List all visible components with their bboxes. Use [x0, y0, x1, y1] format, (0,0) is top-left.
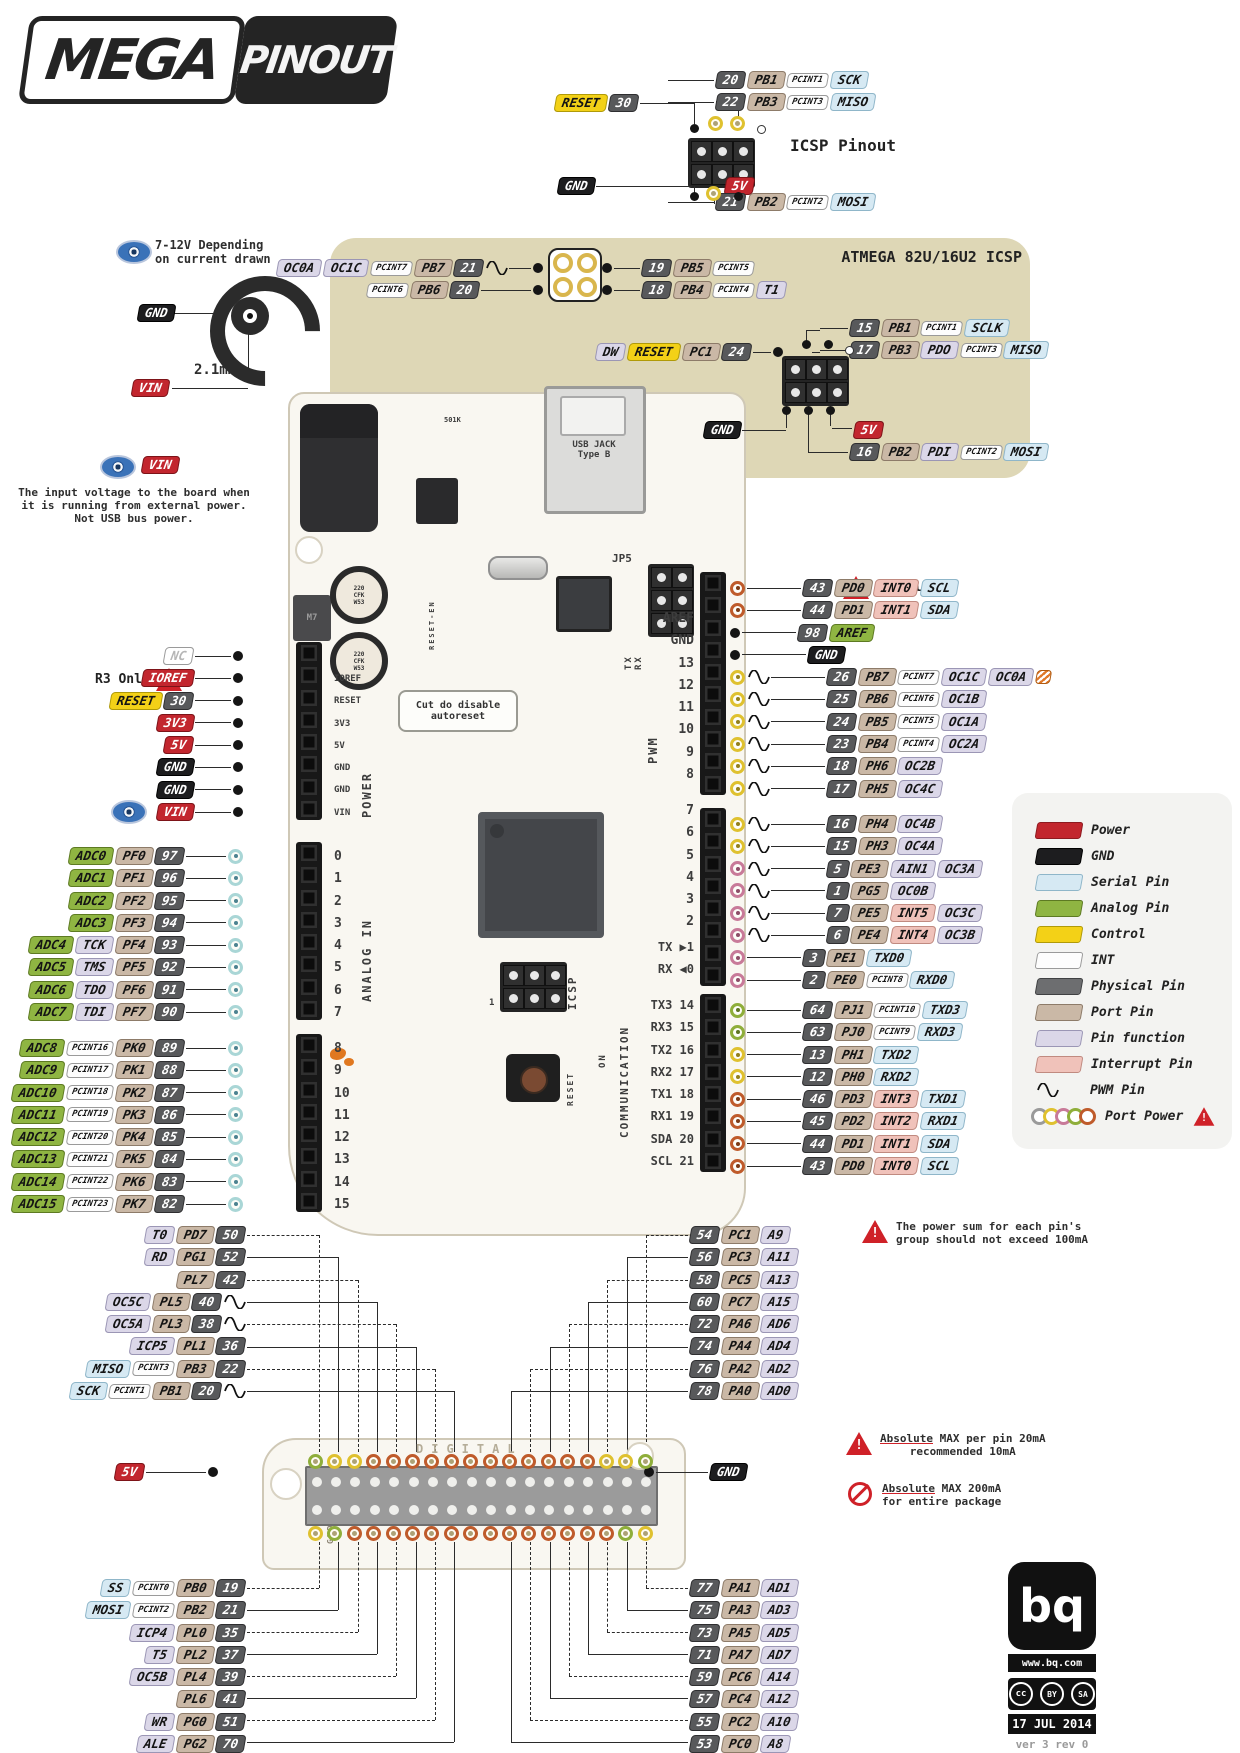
- pwm-squiggle-icon: [224, 1295, 246, 1309]
- pin-chip-ser: TXD1: [920, 1090, 967, 1108]
- pin-row: IOREF: [140, 668, 245, 688]
- warning-triangle-icon: [846, 1432, 872, 1455]
- pin-chip-int: INT1: [873, 601, 920, 619]
- pin-row: GND: [556, 176, 596, 196]
- pin-chip-num: 54: [688, 1226, 720, 1244]
- pin-chip-fn: T1: [755, 281, 787, 299]
- pin-chip-num: 53: [688, 1735, 720, 1753]
- pin-chip-pc: PCINT3: [786, 95, 829, 110]
- pin-row: ADC14PCINT22PK683: [11, 1172, 245, 1192]
- txrx-silk: TX RX: [624, 628, 644, 670]
- right-header-c: [700, 994, 726, 1172]
- pin-chip-pc: PCINT5: [897, 714, 940, 729]
- pin-chip-pc: PCINT2: [786, 195, 829, 210]
- pin-chip-fn: OC0A: [987, 668, 1034, 686]
- pin-chip-num: 43: [801, 579, 833, 597]
- pin-chip-num: 35: [215, 1624, 247, 1642]
- supply-note: 7-12V Depending on current drawn: [155, 238, 271, 266]
- pin-row: DWRESETPC124: [595, 342, 785, 362]
- pin-chip-fn: TMS: [75, 958, 115, 976]
- pin-row: VIN: [140, 455, 180, 475]
- pin-row: 76PA2AD2: [688, 1359, 799, 1379]
- pin-row: 44PD1INT1SDA: [728, 600, 959, 620]
- mega-pinout-poster: MEGA PINOUT ICSP Pinout RESET30 GND 5V 2…: [0, 0, 1240, 1753]
- power-silk-vertical: POWER: [360, 742, 374, 818]
- pin-row: ADC10PCINT18PK287: [11, 1083, 245, 1103]
- pin-chip-num: 91: [154, 981, 186, 999]
- pin-chip-fn: OC3B: [936, 926, 983, 944]
- pin-chip-num: 94: [154, 914, 186, 932]
- pin-chip-num: 44: [801, 601, 833, 619]
- pin-chip-ctl: RESET: [627, 343, 682, 361]
- pin-row: 43PD0INT0SCL: [728, 1156, 959, 1176]
- pwm-squiggle-icon: [748, 839, 770, 853]
- pin-chip-port: PH6: [857, 757, 897, 775]
- atmega-title: ATMEGA 82U/16U2 ICSP: [830, 248, 1022, 266]
- pin-chip-pwr: VIN: [130, 379, 170, 397]
- pin-chip-fn: AD7: [760, 1646, 800, 1664]
- bq-logo: bq: [1008, 1562, 1096, 1650]
- cc-by-icon: BY: [1040, 1682, 1064, 1706]
- pin-chip-port: PG1: [175, 1248, 215, 1266]
- pin-chip-pc: PCINT9: [873, 1025, 916, 1040]
- pin-chip-ser: SCL: [920, 1157, 960, 1175]
- pin-chip-pwr: VIN: [140, 456, 180, 474]
- legend-item: Serial Pin: [1012, 869, 1232, 895]
- resistor-label: 501K: [444, 416, 461, 424]
- power-pin-rows: NCIOREFRESET303V35VGNDGNDVIN: [40, 646, 245, 824]
- pin-chip-gnd: GND: [556, 177, 596, 195]
- pin-chip-fn: TCK: [75, 936, 115, 954]
- pin-row: 77PA1AD1: [688, 1578, 799, 1598]
- eye-icon: [100, 455, 136, 479]
- digital-rows-right: 54PC1A956PC3A1158PC5A1360PC7A1572PA6AD67…: [688, 1225, 799, 1403]
- pin-chip-pc: PCINT17: [66, 1063, 114, 1078]
- reset-silk: RESET: [566, 1054, 575, 1106]
- pin-chip-gnd: GND: [806, 646, 846, 664]
- pwm-squiggle-icon: [748, 759, 770, 773]
- logo-pinout: PINOUT: [234, 16, 398, 104]
- power-silk-column: IOREF RESET 3V3 5V GND GND VIN: [334, 668, 361, 824]
- jp5-label: JP5: [612, 552, 632, 565]
- pin-chip-port: PC6: [720, 1668, 760, 1686]
- pin-chip-port: PF0: [114, 847, 154, 865]
- pin-chip-port: PA5: [720, 1624, 760, 1642]
- pin-chip-pwr: 5V: [114, 1463, 146, 1481]
- pin-chip-port: PB2: [746, 193, 786, 211]
- pin-row: 3PE1TXD0: [728, 948, 912, 968]
- pin-row: ADC0PF097: [67, 846, 245, 866]
- pin-row: 17PH5OC4C: [728, 779, 944, 799]
- pin-chip-num: 15: [825, 837, 857, 855]
- warning-pin-rest: MAX per pin 20mA: [933, 1432, 1046, 1445]
- pwm-squiggle-icon: [748, 737, 770, 751]
- pin-chip-port: PG5: [849, 882, 889, 900]
- pin-chip-num: 59: [688, 1668, 720, 1686]
- pin-chip-num: 84: [154, 1150, 186, 1168]
- warning-group-power: The power sum for each pin's group shoul…: [862, 1220, 1088, 1246]
- pin-chip-fn: A10: [760, 1713, 800, 1731]
- pin-chip-fn: WR: [143, 1713, 175, 1731]
- pin-chip-num: 36: [215, 1337, 247, 1355]
- pin-chip-port: PB7: [413, 259, 453, 277]
- pin-chip-port: PC5: [720, 1271, 760, 1289]
- pin-chip-int: INT5: [889, 904, 936, 922]
- pwm-squiggle-icon: [224, 1317, 246, 1331]
- right-silk-b: 7 6 5 4 3 2: [668, 800, 694, 934]
- pin-chip-gnd: GND: [708, 1463, 748, 1481]
- pin-chip-pc: PCINT7: [370, 261, 413, 276]
- pin-row: 24PB5PCINT5OC1A: [728, 712, 987, 732]
- pin-chip-pc: PCINT20: [66, 1130, 114, 1145]
- pin-chip-num: 26: [825, 668, 857, 686]
- pin-chip-port: PA1: [720, 1579, 760, 1597]
- pin-row: OC5APL338: [104, 1314, 247, 1334]
- pin-chip-fn: AD6: [760, 1315, 800, 1333]
- analog-header-b: [296, 1034, 322, 1212]
- atmega-mosi-row: 16PB2PDIPCINT2MOSI: [820, 442, 1050, 464]
- pin-chip-pc: PCINT21: [66, 1152, 114, 1167]
- pin-chip-an: ADC14: [11, 1173, 66, 1191]
- pwm-silk: PWM: [646, 700, 660, 764]
- pin-chip-ser: RXD3: [916, 1023, 963, 1041]
- pin-chip-an: ADC5: [28, 958, 75, 976]
- pin-row: ADC13PCINT21PK584: [11, 1149, 245, 1169]
- pin-chip-num: 25: [825, 690, 857, 708]
- pin-chip-pc: PCINT6: [897, 692, 940, 707]
- pin-chip-fn: DW: [595, 343, 627, 361]
- pwm-squiggle-icon: [748, 884, 770, 898]
- m7-diode: M7: [293, 595, 331, 641]
- pin-chip-port: PE1: [825, 949, 865, 967]
- pin-chip-fn: PDI: [920, 443, 960, 461]
- comm-silk-col: TX3 14 RX3 15 TX2 16 RX2 17 TX1 18 RX1 1…: [608, 994, 694, 1172]
- pin-chip-num: 42: [215, 1271, 247, 1289]
- pin-chip-gnd: GND: [136, 304, 176, 322]
- pin-chip-num: 3: [801, 949, 826, 967]
- pwm-squiggle-icon: [748, 782, 770, 796]
- pin-chip-pc: PCINT23: [66, 1197, 114, 1212]
- voltage-regulator: [416, 478, 458, 524]
- pin-chip-ser: MOSI: [84, 1601, 131, 1619]
- legend-item: Control: [1012, 921, 1232, 947]
- pin-chip-port: PD3: [833, 1090, 873, 1108]
- pwm-squiggle-icon: [748, 862, 770, 876]
- vin-note-label: VIN: [140, 455, 180, 477]
- pin-chip-num: 41: [215, 1690, 247, 1708]
- bottom-gnd-label: GND: [642, 1462, 748, 1484]
- pin-chip-fn: OC4C: [897, 780, 944, 798]
- pin-row: SCKPCINT1PB120: [68, 1381, 247, 1401]
- pin-chip-pc: PCINT22: [66, 1174, 114, 1189]
- warning-pkg-rest: MAX 200mA: [935, 1482, 1001, 1495]
- legend-item: Interrupt Pin: [1012, 1051, 1232, 1077]
- pin-chip-fn: T5: [143, 1646, 175, 1664]
- pin-chip-num: 12: [801, 1068, 833, 1086]
- pin-chip-port: PK0: [114, 1039, 154, 1057]
- pin-chip-gnd: GND: [155, 781, 195, 799]
- pin-row: ALEPG270: [136, 1734, 247, 1753]
- pin-row: 5V: [852, 420, 884, 440]
- pin-chip-num: 6: [825, 926, 850, 944]
- bottom-rows-left: SSPCINT0PB019MOSIPCINT2PB221ICP4PL035T5P…: [40, 1578, 247, 1753]
- pin-row: 19PB5PCINT5: [600, 258, 755, 278]
- pin-row: RESET30: [108, 691, 245, 711]
- pin-row: 57PC4A12: [688, 1689, 799, 1709]
- pin-chip-port: PC4: [720, 1690, 760, 1708]
- pin-row: ADC8PCINT16PK089: [18, 1038, 245, 1058]
- pin-chip-num: 55: [688, 1713, 720, 1731]
- pin-chip-pc: PCINT16: [66, 1041, 114, 1056]
- pin-chip-fn: AIN1: [889, 860, 936, 878]
- pin-chip-num: 64: [801, 1001, 833, 1019]
- pin-chip-fn: OC1B: [940, 690, 987, 708]
- pin-chip-pwr: VIN: [155, 803, 195, 821]
- pin-chip-pc: PCINT7: [897, 670, 940, 685]
- pin-row: 16PH4OC4B: [728, 814, 944, 834]
- pin-chip-port: PL7: [175, 1271, 215, 1289]
- power-header: [296, 642, 322, 820]
- pin-chip-an: ADC13: [11, 1150, 66, 1168]
- pin-chip-port: PG0: [175, 1713, 215, 1731]
- pin-row: ADC11PCINT19PK386: [11, 1105, 245, 1125]
- pin-chip-fn: A14: [760, 1668, 800, 1686]
- pin-row: 12PH0RXD2: [728, 1067, 920, 1087]
- pin-chip-port: PD1: [833, 1135, 873, 1153]
- pin-row: 59PC6A14: [688, 1667, 799, 1687]
- jack-gnd-label: GND: [60, 303, 176, 325]
- pin-chip-fn: PDO: [920, 341, 960, 359]
- pin-chip-num: 82: [154, 1195, 186, 1213]
- pin-chip-port: PD0: [833, 1157, 873, 1175]
- pwm-squiggle-icon: [748, 715, 770, 729]
- prohibited-icon: [848, 1482, 872, 1506]
- pin-chip-num: 73: [688, 1624, 720, 1642]
- pin-chip-fn: AD2: [760, 1360, 800, 1378]
- legend-item: Power: [1012, 817, 1232, 843]
- pin-row: ADC7TDIPF790: [28, 1002, 245, 1022]
- pin-chip-ser: MOSI: [1003, 443, 1050, 461]
- pin-chip-port: PA0: [720, 1382, 760, 1400]
- pin-chip-fn: A12: [760, 1690, 800, 1708]
- pin-chip-port: PB2: [880, 443, 920, 461]
- pin-row: GND: [642, 1462, 748, 1482]
- pin-chip-pc: PCINT4: [712, 283, 755, 298]
- pin-chip-num: 30: [163, 692, 195, 710]
- pin-chip-num: 40: [191, 1293, 223, 1311]
- atmega-gnd-row: GND: [646, 420, 786, 442]
- pwm-squiggle-icon: [748, 692, 770, 706]
- pin-chip-fn: ALE: [136, 1735, 176, 1753]
- pin-chip-an: ADC1: [67, 869, 114, 887]
- pin-chip-ser: RXD0: [909, 971, 956, 989]
- pin-row: 5V: [163, 735, 245, 755]
- pin-chip-num: 86: [154, 1106, 186, 1124]
- pin-chip-fn: OC4A: [897, 837, 944, 855]
- pin-row: GND: [728, 645, 846, 665]
- pin-chip-num: 24: [825, 713, 857, 731]
- pin-chip-port: PB6: [857, 690, 897, 708]
- atmega-5v-row: 5V: [852, 420, 884, 442]
- icsp-pin1-silk: 1: [489, 998, 494, 1008]
- pin-row: PL742: [175, 1270, 247, 1290]
- pin-chip-fn: OC5C: [104, 1293, 151, 1311]
- pin-chip-num: 1: [825, 882, 850, 900]
- pin-chip-num: 71: [688, 1646, 720, 1664]
- pin-chip-ser: MISO: [1003, 341, 1050, 359]
- pin-row: 2PE0PCINT8RXD0: [728, 970, 956, 990]
- pin-row: 64PJ1PCINT10TXD3: [728, 1000, 969, 1020]
- jack-vin-label: VIN: [60, 378, 170, 400]
- pin-chip-port: PC1: [681, 343, 721, 361]
- pin-row: 15PH3OC4A: [728, 836, 944, 856]
- icsp-silk: ICSP: [566, 962, 579, 1010]
- pin-chip-port: PB3: [175, 1360, 215, 1378]
- pwm-squiggle-icon: [748, 928, 770, 942]
- analog-numbers-b: 8 9 10 11 12 13 14 15: [334, 1038, 350, 1216]
- pin-chip-port: PE0: [825, 971, 865, 989]
- pin-chip-fn: T0: [143, 1226, 175, 1244]
- pin-row: 6PE4INT4OC3B: [728, 925, 983, 945]
- pin-chip-port: PB1: [746, 71, 786, 89]
- pin-chip-ser: SS: [99, 1579, 131, 1597]
- legend-item: Analog Pin: [1012, 895, 1232, 921]
- pin-row: 18PH6OC2B: [728, 756, 944, 776]
- pin-chip-port: PC7: [720, 1293, 760, 1311]
- pin-row: OC5BPL439: [128, 1667, 247, 1687]
- pin-chip-fn: A13: [760, 1271, 800, 1289]
- pin-row: 5PE3AIN1OC3A: [728, 859, 983, 879]
- pin-chip-ser: SCK: [68, 1382, 108, 1400]
- pin-chip-num: 2: [801, 971, 826, 989]
- pin-row: 74PA4AD4: [688, 1336, 799, 1356]
- pin-row: T0PD750: [143, 1225, 247, 1245]
- pin-chip-num: 20: [449, 281, 481, 299]
- pin-chip-port: PF3: [114, 914, 154, 932]
- pin-row: 58PC5A13: [688, 1270, 799, 1290]
- analog-numbers-a: 0 1 2 3 4 5 6 7: [334, 846, 342, 1024]
- board-icsp-header: [500, 962, 567, 1012]
- pin-chip-pc: PCINT5: [712, 261, 755, 276]
- pin-chip-num: 88: [154, 1061, 186, 1079]
- pin-chip-port: PB3: [880, 341, 920, 359]
- pin-row: 15PB1PCINT1SCLK: [820, 318, 1010, 338]
- pin-row: 23PB4PCINT4OC2A: [728, 734, 987, 754]
- pin-chip-num: 13: [801, 1046, 833, 1064]
- pin-chip-int: INT1: [873, 1135, 920, 1153]
- usb-jack-label: USB JACK Type B: [552, 440, 636, 460]
- pin-chip-pc: PCINT1: [108, 1384, 151, 1399]
- pin-chip-gnd: GND: [702, 421, 742, 439]
- pin-chip-an: AREF: [828, 624, 875, 642]
- pin-row: 1PG5OC0B: [728, 881, 936, 901]
- mounting-hole: [270, 1468, 302, 1500]
- icsp-gnd-row: GND: [450, 176, 596, 198]
- pin-chip-fn: AD0: [760, 1382, 800, 1400]
- pin-chip-port: PL0: [175, 1624, 215, 1642]
- right-rows-a: 43PD0INT0SCL44PD1INT1SDA98AREFGND26PB7PC…: [728, 578, 1053, 801]
- pin-row: ICP4PL035: [128, 1623, 247, 1643]
- pin-chip-ser: TXD0: [865, 949, 912, 967]
- pin-chip-gnd: GND: [155, 758, 195, 776]
- pin-chip-port: PF5: [114, 958, 154, 976]
- pin-chip-num: 39: [215, 1668, 247, 1686]
- pin-chip-pc: PCINT10: [873, 1003, 921, 1018]
- pin-chip-num: 63: [801, 1023, 833, 1041]
- legend-item: INT: [1012, 947, 1232, 973]
- pin-chip-pc: PCINT6: [366, 283, 409, 298]
- pin-chip-port: PA7: [720, 1646, 760, 1664]
- pwm-squiggle-icon: [224, 1384, 246, 1398]
- pin-chip-port: PK5: [114, 1150, 154, 1168]
- pin-chip-port: PE4: [849, 926, 889, 944]
- pwm-squiggle-icon: [748, 670, 770, 684]
- pin-chip-an: ADC11: [11, 1106, 66, 1124]
- crystal-oscillator: [488, 556, 548, 580]
- pin-chip-port: PE5: [849, 904, 889, 922]
- atmega16u2-chip: [556, 576, 612, 632]
- legend-item: Pin function: [1012, 1025, 1232, 1051]
- pin-row: MOSIPCINT2PB221: [85, 1600, 247, 1620]
- pin-chip-fn: OC2A: [940, 735, 987, 753]
- pin-row: VIN: [111, 802, 245, 822]
- pin-chip-port: PB4: [672, 281, 712, 299]
- pin-chip-ser: SDA: [920, 601, 960, 619]
- pin-chip-fn: OC3A: [936, 860, 983, 878]
- bottom-5v-label: 5V: [140, 1462, 220, 1484]
- pin-chip-pc: PCINT19: [66, 1107, 114, 1122]
- autoreset-callout: Cut do disable autoreset: [398, 690, 518, 732]
- pin-chip-port: PD0: [833, 579, 873, 597]
- pin-chip-num: 19: [640, 259, 672, 277]
- pin-row: 20PB1PCINT1SCK: [668, 70, 869, 90]
- pin-chip-an: ADC12: [11, 1128, 66, 1146]
- pin-row: ADC12PCINT20PK485: [11, 1127, 245, 1147]
- pin-chip-fn: OC4B: [897, 815, 944, 833]
- pin-chip-num: 58: [688, 1271, 720, 1289]
- warning-pin-max: Absolute MAX per pin 20mA recommended 10…: [846, 1432, 1046, 1458]
- pin-chip-fn: OC3C: [936, 904, 983, 922]
- pin-chip-num: 20: [714, 71, 746, 89]
- pin-chip-an: ADC4: [28, 936, 75, 954]
- pin-chip-ser: MISO: [84, 1360, 131, 1378]
- pin-chip-ser: SDA: [920, 1135, 960, 1153]
- pin-chip-num: 93: [154, 936, 186, 954]
- pin-chip-port: PB7: [857, 668, 897, 686]
- pin-chip-fn: A9: [760, 1226, 792, 1244]
- atmega-sclk-miso-rows: 15PB1PCINT1SCLK17PB3PDOPCINT3MISO: [820, 318, 1050, 363]
- atmega-top-header: [548, 248, 602, 302]
- pin-chip-port: PF1: [114, 869, 154, 887]
- pin-chip-nc: NC: [163, 647, 195, 665]
- pin-chip-num: 50: [215, 1226, 247, 1244]
- pin-chip-fn: AD5: [760, 1624, 800, 1642]
- pin-chip-num: 60: [688, 1293, 720, 1311]
- pin-row: GND: [155, 780, 245, 800]
- pin-chip-port: PB2: [175, 1601, 215, 1619]
- pin-row: RESET30: [553, 93, 640, 113]
- pin-chip-port: PL1: [175, 1337, 215, 1355]
- pin-chip-pc: PCINT1: [786, 73, 829, 88]
- icsp-reset-row: RESET30: [480, 93, 640, 115]
- pin-chip-fn: A15: [760, 1293, 800, 1311]
- pin-chip-port: PK6: [114, 1173, 154, 1191]
- pin-chip-pc: PCINT8: [865, 973, 908, 988]
- pin-chip-fn: OC5A: [104, 1315, 151, 1333]
- pin-chip-num: 95: [154, 892, 186, 910]
- pin-chip-pc: PCINT3: [132, 1361, 175, 1376]
- pin-chip-num: 43: [801, 1157, 833, 1175]
